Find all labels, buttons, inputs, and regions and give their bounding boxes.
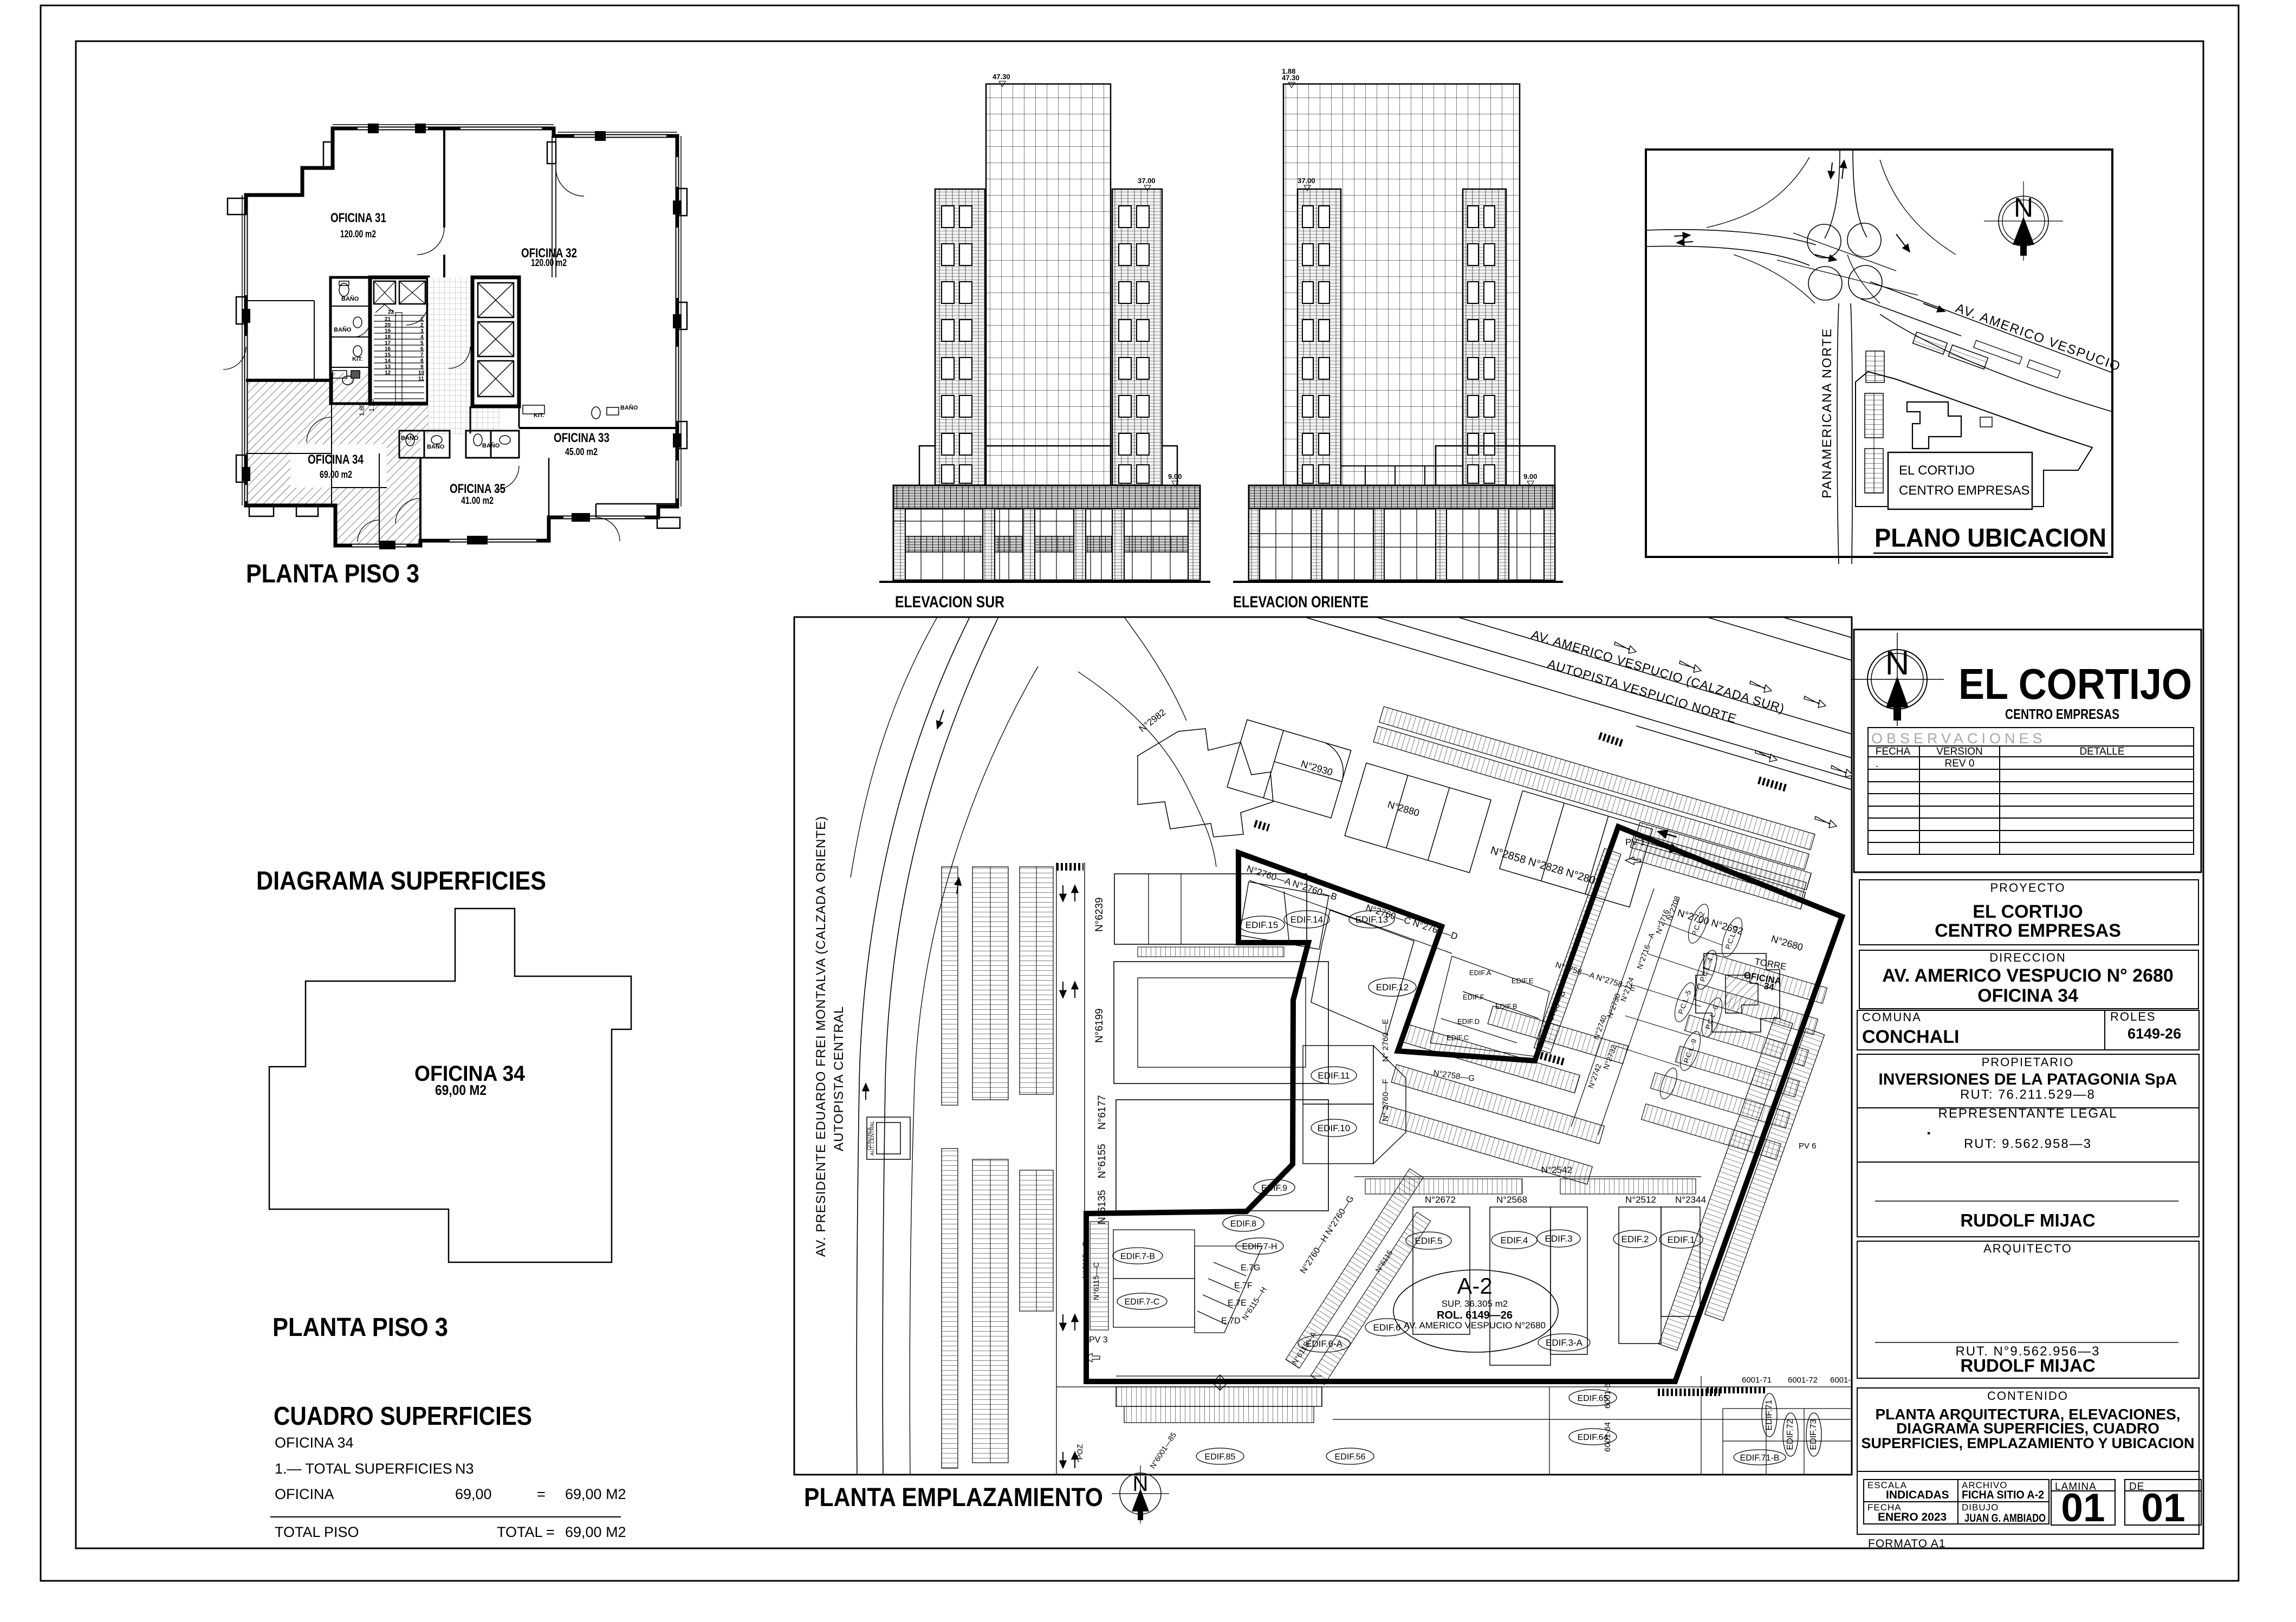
svg-text:OFICINA 33: OFICINA 33 [554,431,609,445]
svg-text:RUT: 9.562.958—3: RUT: 9.562.958—3 [1964,1137,2092,1151]
svg-text:EDIF.9: EDIF.9 [1261,1184,1287,1193]
svg-text:N°2512: N°2512 [1625,1195,1656,1205]
svg-text:69,00 M2: 69,00 M2 [565,1524,626,1540]
svg-text:ROLES: ROLES [2110,1010,2156,1023]
svg-text:EDIF.12: EDIF.12 [1376,982,1409,992]
svg-text:N°6115—B: N°6115—B [1081,1241,1089,1279]
svg-text:FECHA: FECHA [1876,746,1911,757]
svg-text:6: 6 [420,346,424,352]
svg-text:PLANTA PISO 3: PLANTA PISO 3 [246,560,419,588]
svg-text:01: 01 [2061,1486,2105,1530]
svg-text:14: 14 [385,358,391,364]
svg-text:EDIF.F: EDIF.F [1463,993,1484,1001]
svg-text:120.00 m2: 120.00 m2 [531,257,567,268]
svg-text:AUT. CENTRAL: AUT. CENTRAL [870,1121,875,1156]
svg-text:69,00 M2: 69,00 M2 [565,1486,626,1502]
svg-text:EDIF.15: EDIF.15 [1246,920,1278,930]
svg-text:TOTAL =: TOTAL = [497,1524,555,1540]
svg-text:JUAN G. AMBIADO: JUAN G. AMBIADO [1964,1512,2046,1524]
svg-text:N°6177: N°6177 [1097,1095,1108,1130]
svg-text:BAÑO: BAÑO [341,295,359,302]
svg-text:EDIF.E: EDIF.E [1512,977,1534,985]
svg-text:EDIF.73: EDIF.73 [1809,1419,1818,1450]
svg-text:AV. PRESIDENTE EDUARDO FREI MO: AV. PRESIDENTE EDUARDO FREI MONTALVA (CA… [814,816,828,1257]
svg-text:2: 2 [420,322,424,328]
svg-text:DIAGRAMA SUPERFICIES: DIAGRAMA SUPERFICIES [256,867,546,896]
svg-text:OBSERVACIONES: OBSERVACIONES [1871,730,2046,747]
svg-text:3: 3 [420,328,424,334]
svg-text:RUT: 76.211.529—8: RUT: 76.211.529—8 [1960,1087,2096,1102]
svg-text:ENERO 2023: ENERO 2023 [1878,1511,1947,1523]
svg-text:SUP. 36.305 m2: SUP. 36.305 m2 [1442,1299,1508,1309]
svg-text:EDIF.7-C: EDIF.7-C [1125,1297,1160,1307]
svg-text:69.00 m2: 69.00 m2 [320,469,352,480]
svg-text:11: 11 [418,376,424,382]
svg-text:ELEVACION SUR: ELEVACION SUR [895,593,1004,611]
svg-text:N°2568: N°2568 [1496,1195,1527,1205]
svg-text:EDIF.56: EDIF.56 [1335,1452,1366,1462]
svg-text:47.30: 47.30 [993,73,1010,81]
svg-text:.: . [1876,758,1878,770]
svg-text:EDIF.3-A: EDIF.3-A [1546,1338,1583,1348]
svg-text:KIT.: KIT. [352,356,363,362]
svg-text:DETALLE: DETALLE [2079,746,2124,757]
svg-text:9: 9 [420,364,424,370]
svg-text:PROPIETARIO: PROPIETARIO [1982,1055,2074,1069]
svg-text:SUPERFICIES, EMPLAZAMIENTO Y U: SUPERFICIES, EMPLAZAMIENTO Y UBICACION [1861,1435,2194,1451]
svg-text:N°6239: N°6239 [1094,897,1105,932]
svg-text:69,00: 69,00 [455,1486,492,1502]
svg-text:7: 7 [420,352,424,358]
svg-text:N°2542: N°2542 [1541,1165,1572,1175]
svg-text:PROYECTO: PROYECTO [1990,881,2065,894]
svg-text:DIBUJO: DIBUJO [1962,1502,1999,1513]
svg-text:22: 22 [388,309,394,315]
svg-text:6149-26: 6149-26 [2128,1026,2181,1042]
svg-text:N°2672: N°2672 [1425,1195,1456,1205]
svg-text:EDIF.71: EDIF.71 [1765,1399,1774,1430]
svg-text:N°6155: N°6155 [1097,1144,1108,1178]
svg-text:1.20: 1.20 [368,399,375,412]
svg-text:=: = [537,1486,546,1502]
svg-text:EDIF.3: EDIF.3 [1545,1234,1572,1244]
svg-text:PLANTA EMPLAZAMIENTO: PLANTA EMPLAZAMIENTO [804,1483,1103,1512]
svg-text:45.00 m2: 45.00 m2 [565,446,598,457]
svg-text:TOTAL PISO: TOTAL PISO [275,1524,359,1540]
svg-text:5: 5 [420,340,424,346]
svg-text:N°6199: N°6199 [1094,1008,1105,1043]
svg-text:EDIF.7-H: EDIF.7-H [1242,1242,1277,1251]
svg-text:01: 01 [2141,1486,2185,1530]
svg-text:9.00: 9.00 [1523,472,1537,481]
svg-text:4: 4 [420,334,424,340]
svg-text:EDIF.8: EDIF.8 [1230,1219,1256,1229]
svg-text:6001-71: 6001-71 [1742,1376,1772,1385]
svg-text:16: 16 [385,346,391,352]
svg-text:REPRESENTANTE LEGAL: REPRESENTANTE LEGAL [1938,1106,2118,1121]
svg-text:RUDOLF MIJAC: RUDOLF MIJAC [1960,1355,2095,1376]
svg-text:BAÑO: BAÑO [427,443,445,450]
svg-text:OFICINA 35: OFICINA 35 [450,482,505,496]
svg-text:EDIF.1: EDIF.1 [1667,1235,1695,1245]
svg-text:BAÑO: BAÑO [401,434,419,442]
svg-text:AV. AMERICO VESPUCIO N°2680: AV. AMERICO VESPUCIO N°2680 [1404,1320,1546,1331]
svg-text:EDIF.7-B: EDIF.7-B [1120,1252,1155,1261]
svg-text:N°2344: N°2344 [1675,1195,1706,1205]
svg-text:EDIF.A: EDIF.A [1469,969,1491,977]
svg-text:N3: N3 [455,1461,474,1477]
svg-text:CONCHALI: CONCHALI [1862,1027,1959,1047]
svg-text:E.7G: E.7G [1241,1263,1260,1273]
svg-text:EL CORTIJO: EL CORTIJO [1958,660,2192,708]
svg-text:47.30: 47.30 [1282,74,1300,82]
svg-text:OFICINA 34: OFICINA 34 [275,1435,354,1451]
svg-text:EDIF.D: EDIF.D [1457,1017,1480,1026]
svg-text:EL CORTIJO: EL CORTIJO [1899,463,1975,478]
svg-text:120.00 m2: 120.00 m2 [340,229,376,239]
svg-text:EL CORTIJO: EL CORTIJO [1973,901,2083,922]
svg-text:FICHA SITIO A-2: FICHA SITIO A-2 [1962,1489,2044,1501]
svg-text:CUADRO SUPERFICIES: CUADRO SUPERFICIES [274,1402,532,1431]
svg-text:OFICINA 34: OFICINA 34 [1977,985,2078,1006]
svg-text:EDIF.11: EDIF.11 [1318,1070,1350,1081]
svg-text:INDICADAS: INDICADAS [1886,1489,1949,1501]
svg-text:CENTRO EMPRESAS: CENTRO EMPRESAS [1935,920,2121,941]
svg-text:DIRECCION: DIRECCION [1989,951,2066,964]
svg-text:37.00: 37.00 [1298,177,1315,185]
svg-text:CENTRO EMPRESAS: CENTRO EMPRESAS [2005,706,2119,722]
svg-text:PV 6: PV 6 [1799,1141,1817,1151]
svg-text:AUTOPISTA CENTRAL: AUTOPISTA CENTRAL [832,1006,846,1151]
svg-text:FORMATO A1: FORMATO A1 [1868,1537,1945,1550]
svg-text:69,00 M2: 69,00 M2 [435,1082,487,1098]
svg-text:A-2: A-2 [1457,1273,1492,1299]
svg-text:41.00 m2: 41.00 m2 [461,495,494,506]
svg-text:EDIF.85: EDIF.85 [1205,1452,1236,1462]
svg-text:15: 15 [385,352,391,358]
svg-text:37.00: 37.00 [1138,177,1156,185]
svg-text:12: 12 [385,370,391,376]
svg-text:N° 2760—E: N° 2760—E [1381,1019,1390,1062]
svg-text:6001-72: 6001-72 [1788,1376,1818,1385]
svg-text:EDIF.64: EDIF.64 [1578,1433,1609,1442]
svg-text:EDIF.71-B: EDIF.71-B [1740,1454,1780,1463]
svg-text:KIT.: KIT. [534,412,544,419]
svg-text:OFICINA 34: OFICINA 34 [308,452,364,467]
svg-text:EDIF.72: EDIF.72 [1786,1419,1795,1450]
svg-text:EDIF.4: EDIF.4 [1500,1235,1528,1245]
svg-text:ROL. 6149—26: ROL. 6149—26 [1437,1309,1513,1321]
svg-text:BAÑO: BAÑO [334,326,352,333]
svg-text:20: 20 [385,322,391,328]
svg-text:.: . [1927,1120,1931,1138]
svg-text:OFICINA 31: OFICINA 31 [330,211,386,225]
svg-text:EDIF.14: EDIF.14 [1290,914,1323,925]
svg-text:OFICINA: OFICINA [275,1486,334,1502]
svg-text:18: 18 [385,334,391,340]
svg-text:VERSION: VERSION [1936,746,1983,757]
svg-text:19: 19 [385,328,391,334]
svg-text:ELEVACION ORIENTE: ELEVACION ORIENTE [1233,593,1368,611]
svg-text:1.— TOTAL SUPERFICIES: 1.— TOTAL SUPERFICIES [275,1461,452,1477]
svg-text:BAÑO: BAÑO [482,442,500,449]
svg-text:REV 0: REV 0 [1945,758,1975,769]
svg-text:PANAMERICANA NORTE: PANAMERICANA NORTE [1820,328,1834,498]
svg-text:13: 13 [385,364,391,370]
svg-text:EDIF.6: EDIF.6 [1373,1322,1400,1333]
svg-text:BAÑO: BAÑO [620,404,638,411]
svg-text:9.00: 9.00 [1168,472,1182,481]
svg-text:PLANTA PISO 3: PLANTA PISO 3 [273,1313,448,1342]
svg-text:RUDOLF MIJAC: RUDOLF MIJAC [1960,1210,2095,1230]
svg-text:INVERSIONES DE LA PATAGONIA Sp: INVERSIONES DE LA PATAGONIA SpA [1878,1070,2177,1088]
svg-text:DIAGRAMA SUPERFICIES, CUADRO: DIAGRAMA SUPERFICIES, CUADRO [1896,1420,2159,1437]
svg-text:EDIF.2: EDIF.2 [1621,1234,1649,1244]
svg-text:AV. AMERICO VESPUCIO N° 2680: AV. AMERICO VESPUCIO N° 2680 [1882,965,2174,986]
svg-text:N°6135: N°6135 [1097,1190,1108,1224]
svg-text:EDIF.10: EDIF.10 [1318,1123,1350,1133]
svg-text:1.80: 1.80 [358,403,366,416]
svg-text:N°6115—C: N°6115—C [1092,1262,1100,1300]
svg-text:10: 10 [418,370,425,376]
svg-text:°POZ: °POZ [1075,1444,1084,1463]
svg-text:8: 8 [420,358,424,364]
svg-text:PLANO UBICACION: PLANO UBICACION [1875,524,2106,553]
svg-text:17: 17 [385,340,391,346]
svg-text:ARQUITECTO: ARQUITECTO [1983,1242,2072,1255]
svg-text:PV 3: PV 3 [1089,1335,1108,1345]
svg-text:CONTENIDO: CONTENIDO [1987,1389,2068,1403]
svg-text:CENTRO EMPRESAS: CENTRO EMPRESAS [1899,483,2029,498]
svg-text:EDIF.65: EDIF.65 [1578,1394,1609,1403]
svg-text:21: 21 [385,316,391,322]
svg-text:COMUNA: COMUNA [1862,1010,1922,1024]
